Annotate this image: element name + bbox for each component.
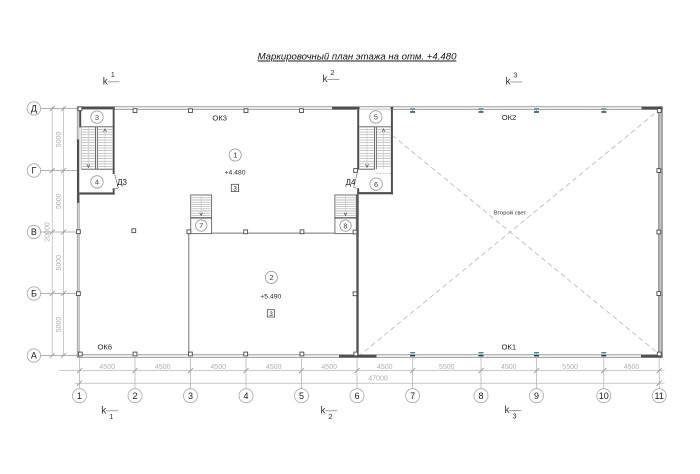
svg-text:6: 6: [354, 391, 359, 401]
svg-text:8: 8: [478, 391, 483, 401]
svg-text:4: 4: [95, 178, 99, 187]
svg-text:3: 3: [188, 391, 193, 401]
svg-text:ОК2: ОК2: [502, 113, 517, 122]
svg-text:5000: 5000: [56, 317, 63, 333]
svg-text:5: 5: [374, 113, 378, 122]
svg-text:8: 8: [343, 221, 347, 230]
svg-text:А: А: [31, 351, 37, 361]
svg-text:5500: 5500: [439, 364, 455, 371]
svg-text:11: 11: [655, 391, 664, 401]
svg-text:Второй свет: Второй свет: [494, 210, 527, 217]
svg-text:2: 2: [330, 68, 334, 77]
svg-text:4500: 4500: [266, 364, 282, 371]
svg-text:3: 3: [512, 411, 516, 420]
svg-text:9: 9: [534, 391, 539, 401]
svg-text:4500: 4500: [210, 364, 226, 371]
svg-text:47000: 47000: [368, 376, 388, 383]
svg-text:4500: 4500: [99, 364, 115, 371]
svg-text:6: 6: [374, 180, 378, 189]
svg-text:2: 2: [269, 273, 273, 282]
svg-text:1: 1: [111, 70, 115, 79]
svg-text:10: 10: [599, 391, 609, 401]
svg-text:Д3: Д3: [117, 178, 127, 187]
svg-text:4: 4: [243, 391, 248, 401]
svg-text:1: 1: [109, 412, 113, 421]
svg-text:5500: 5500: [562, 364, 578, 371]
svg-text:ОК3: ОК3: [212, 113, 227, 122]
svg-text:Маркировочный план этажа на от: Маркировочный план этажа на отм. +4.480: [258, 52, 458, 63]
svg-text:7: 7: [199, 221, 203, 230]
svg-text:5000: 5000: [56, 132, 63, 148]
svg-text:7: 7: [410, 391, 415, 401]
svg-text:4500: 4500: [321, 364, 337, 371]
svg-text:+4.480: +4.480: [225, 170, 246, 177]
svg-text:4500: 4500: [624, 364, 640, 371]
svg-text:3: 3: [233, 185, 237, 192]
svg-text:Д4: Д4: [346, 178, 356, 187]
svg-text:+5.490: +5.490: [260, 294, 281, 301]
svg-text:В: В: [31, 227, 37, 237]
svg-text:4500: 4500: [155, 364, 171, 371]
svg-text:Г: Г: [31, 166, 36, 176]
svg-text:5000: 5000: [56, 193, 63, 209]
svg-text:3: 3: [269, 311, 273, 318]
svg-text:ОК1: ОК1: [502, 342, 517, 351]
svg-text:4500: 4500: [377, 364, 393, 371]
svg-text:5: 5: [299, 391, 304, 401]
svg-text:1: 1: [233, 151, 237, 160]
svg-text:Д: Д: [31, 104, 37, 114]
svg-text:3: 3: [513, 70, 517, 79]
svg-text:5000: 5000: [56, 255, 63, 271]
svg-text:2: 2: [328, 412, 332, 421]
svg-text:2: 2: [132, 391, 137, 401]
svg-text:1: 1: [77, 391, 82, 401]
svg-text:4500: 4500: [501, 364, 517, 371]
svg-text:Б: Б: [31, 289, 37, 299]
svg-text:3: 3: [95, 113, 99, 122]
svg-text:ОК6: ОК6: [98, 342, 113, 351]
